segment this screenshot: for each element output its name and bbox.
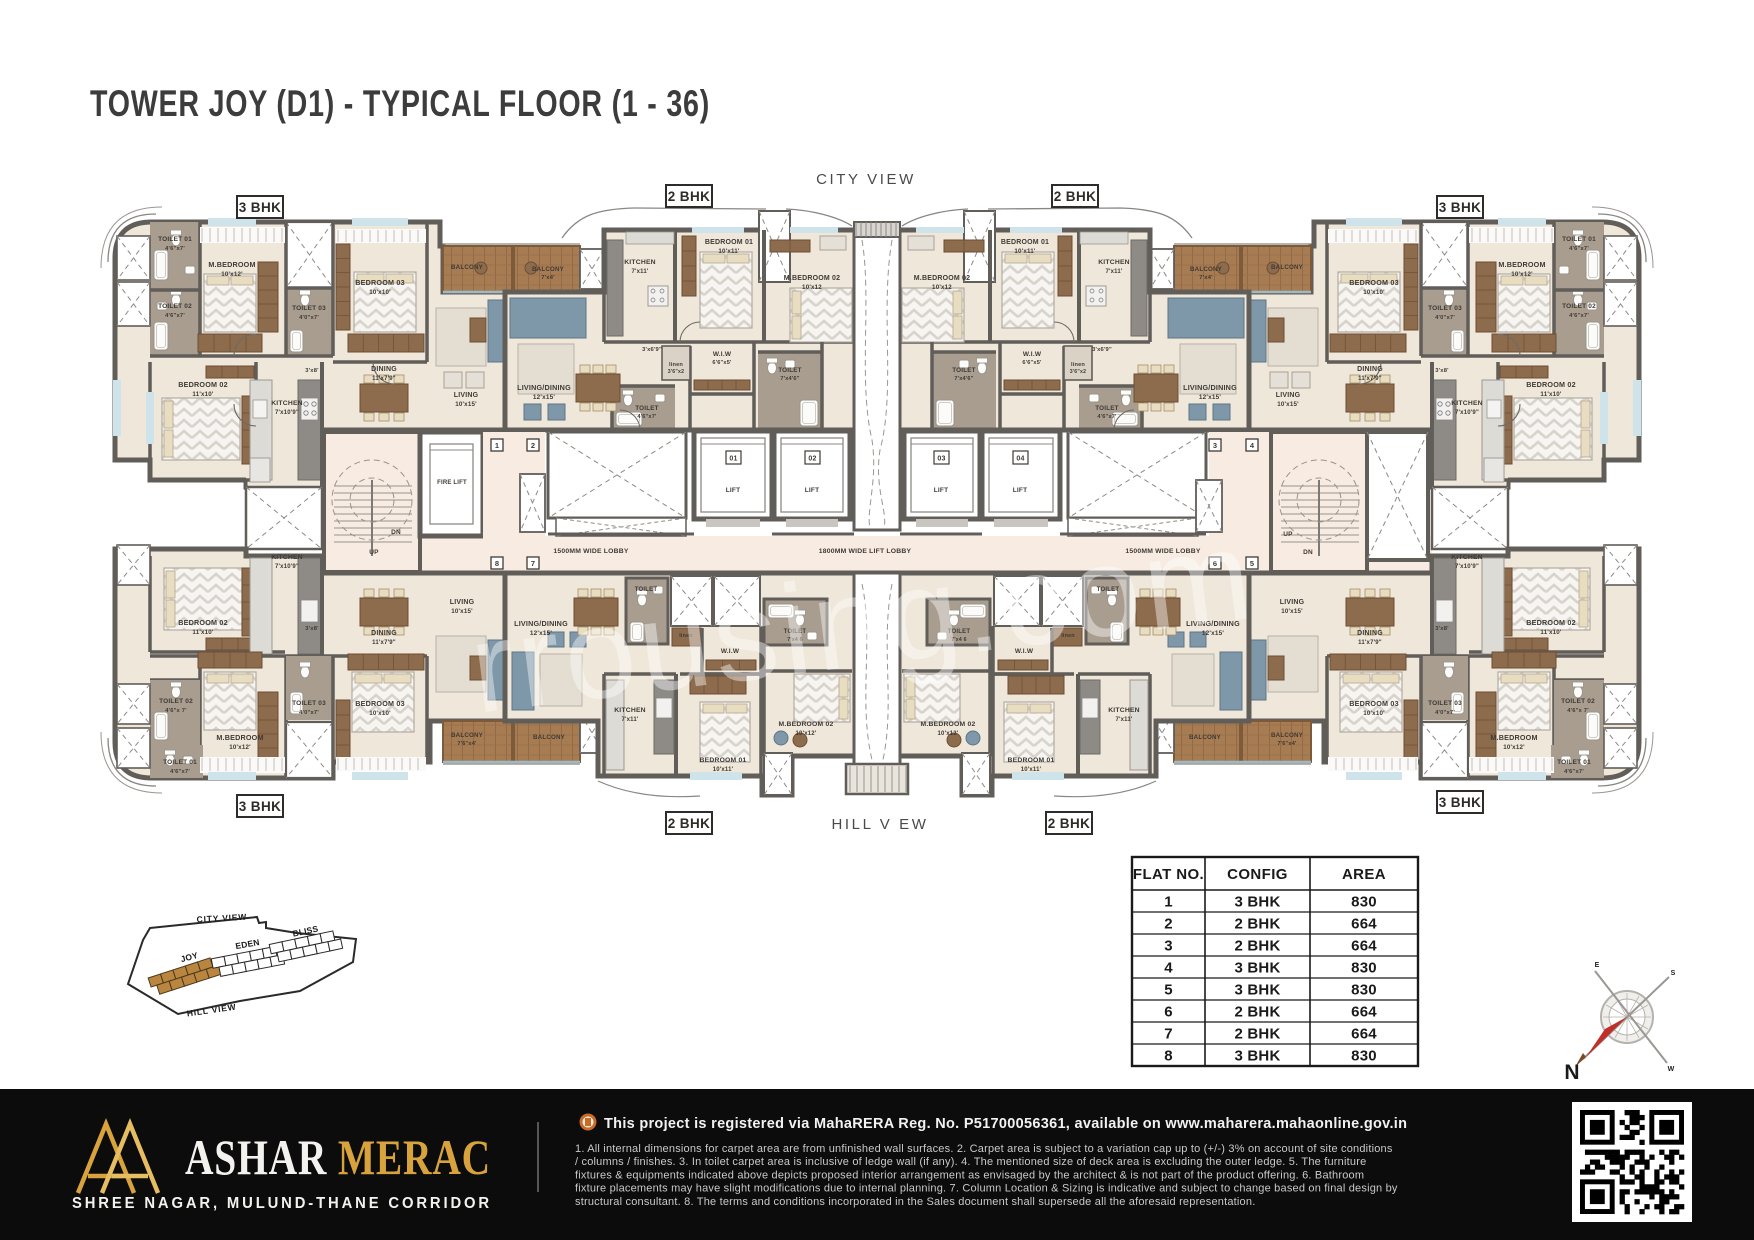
svg-text:03: 03 (937, 456, 945, 463)
svg-text:830: 830 (1351, 1048, 1377, 1065)
svg-text:UP: UP (1283, 531, 1293, 538)
svg-text:2 BHK: 2 BHK (668, 816, 711, 831)
svg-text:4: 4 (1250, 441, 1255, 450)
svg-text:TOILET: TOILET (635, 405, 658, 412)
svg-text:LIFT: LIFT (1013, 487, 1028, 494)
svg-text:linen: linen (669, 362, 683, 368)
svg-text:3 BHK: 3 BHK (1234, 894, 1280, 911)
svg-text:LIFT: LIFT (934, 487, 949, 494)
svg-text:830: 830 (1351, 894, 1377, 911)
svg-text:3'6"x2: 3'6"x2 (668, 369, 684, 375)
svg-text:8: 8 (1164, 1048, 1173, 1065)
svg-text:BALCONY: BALCONY (532, 266, 565, 273)
svg-text:10'x11': 10'x11' (1014, 248, 1036, 255)
svg-text:11'x7'9": 11'x7'9" (372, 376, 396, 382)
svg-text:11'x7'9": 11'x7'9" (1358, 376, 1382, 382)
svg-text:7'x10'9": 7'x10'9" (275, 564, 299, 570)
svg-text:7'x4'6": 7'x4'6" (954, 376, 973, 382)
svg-text:LIFT: LIFT (805, 487, 820, 494)
svg-text:7: 7 (531, 559, 535, 568)
svg-text:BALCONY: BALCONY (533, 734, 566, 741)
svg-text:830: 830 (1351, 960, 1377, 977)
svg-text:10'x12: 10'x12 (932, 284, 952, 291)
svg-text:7'x10'9": 7'x10'9" (275, 410, 299, 416)
svg-text:4'6"x 7': 4'6"x 7' (165, 708, 187, 714)
svg-text:2: 2 (531, 441, 535, 450)
svg-text:This project is registered via: This project is registered via MahaRERA … (604, 1116, 1407, 1132)
svg-text:10'x15': 10'x15' (1281, 608, 1303, 615)
svg-text:6'6"x5': 6'6"x5' (1022, 360, 1042, 366)
svg-text:TOILET 01: TOILET 01 (1557, 759, 1591, 766)
svg-text:4'6"x7': 4'6"x7' (165, 313, 185, 319)
svg-text:11'x10': 11'x10' (192, 391, 214, 398)
svg-text:7'6"x4': 7'6"x4' (1277, 741, 1297, 747)
svg-text:10'x12: 10'x12 (802, 284, 822, 291)
svg-text:3 BHK: 3 BHK (1234, 1048, 1280, 1065)
svg-text:4'0"x7': 4'0"x7' (299, 315, 319, 321)
svg-text:7'x10'9": 7'x10'9" (1455, 410, 1479, 416)
svg-text:2 BHK: 2 BHK (1054, 189, 1097, 204)
svg-text:BALCONY: BALCONY (1189, 734, 1222, 741)
svg-text:LIFT: LIFT (726, 487, 741, 494)
svg-text:10'x11': 10'x11' (713, 767, 734, 773)
svg-text:3 BHK: 3 BHK (1439, 795, 1482, 810)
svg-text:3'x6'9": 3'x6'9" (1092, 347, 1112, 353)
svg-text:10'x12': 10'x12' (938, 731, 959, 737)
svg-text:BEDROOM 02: BEDROOM 02 (1526, 618, 1576, 627)
svg-text:4: 4 (1164, 960, 1173, 977)
svg-text:4'6"x7': 4'6"x7' (637, 414, 657, 420)
svg-text:664: 664 (1351, 1026, 1377, 1043)
svg-text:1: 1 (1164, 894, 1173, 911)
svg-text:BEDROOM 01: BEDROOM 01 (1001, 239, 1049, 246)
svg-text:DINING: DINING (1357, 630, 1383, 637)
svg-text:LIVING/DINING: LIVING/DINING (1183, 383, 1237, 392)
svg-text:3'x8': 3'x8' (1435, 368, 1449, 374)
svg-text:10'x12': 10'x12' (221, 271, 243, 278)
svg-text:10'x11': 10'x11' (718, 248, 740, 255)
svg-text:4'0"x7': 4'0"x7' (1435, 710, 1455, 716)
svg-text:2 BHK: 2 BHK (1048, 816, 1091, 831)
svg-text:LIVING/DINING: LIVING/DINING (517, 383, 571, 392)
svg-text:TOILET 02: TOILET 02 (1562, 303, 1596, 310)
svg-text:TOILET 02: TOILET 02 (158, 303, 192, 310)
svg-text:3'6"x2: 3'6"x2 (1070, 369, 1086, 375)
svg-text:4'6"x7': 4'6"x7' (1569, 246, 1589, 252)
svg-text:BEDROOM 02: BEDROOM 02 (178, 618, 228, 627)
svg-text:8: 8 (495, 559, 499, 568)
svg-text:02: 02 (808, 456, 816, 463)
svg-text:KITCHEN: KITCHEN (1108, 707, 1140, 714)
svg-text:BEDROOM 03: BEDROOM 03 (355, 699, 405, 708)
svg-text:4'6"x7': 4'6"x7' (1564, 769, 1584, 775)
svg-text:10'x10': 10'x10' (369, 710, 391, 717)
svg-text:ASHAR MERAC: ASHAR MERAC (185, 1129, 491, 1185)
svg-text:KITCHEN: KITCHEN (1451, 554, 1483, 561)
svg-text:11'x7'9": 11'x7'9" (1358, 640, 1382, 646)
svg-text:TOILET: TOILET (1095, 405, 1118, 412)
svg-text:7'x11': 7'x11' (631, 269, 648, 275)
svg-text:4'0"x7': 4'0"x7' (1435, 315, 1455, 321)
svg-text:BEDROOM 03: BEDROOM 03 (355, 278, 405, 287)
svg-text:10'x11': 10'x11' (1021, 767, 1042, 773)
svg-text:BALCONY: BALCONY (451, 264, 484, 271)
svg-text:N: N (1564, 1061, 1579, 1084)
svg-text:2 BHK: 2 BHK (1234, 1026, 1280, 1043)
svg-text:7'x4': 7'x4' (1199, 275, 1213, 281)
svg-text:10'x10': 10'x10' (1363, 289, 1385, 296)
svg-text:3'x8': 3'x8' (1435, 626, 1449, 632)
svg-text:BALCONY: BALCONY (1271, 264, 1304, 271)
svg-text:TOILET 03: TOILET 03 (1428, 305, 1462, 312)
svg-text:FIRE LIFT: FIRE LIFT (437, 480, 467, 486)
svg-text:BEDROOM 03: BEDROOM 03 (1349, 699, 1399, 708)
svg-text:TOILET 01: TOILET 01 (1562, 236, 1596, 243)
svg-text:12'x15': 12'x15' (1199, 394, 1221, 401)
svg-text:10'x12': 10'x12' (1511, 271, 1533, 278)
svg-text:M.BEDROOM: M.BEDROOM (208, 260, 255, 269)
svg-text:linen: linen (1071, 362, 1085, 368)
svg-text:2: 2 (1164, 916, 1173, 933)
svg-text:TOILET 01: TOILET 01 (163, 759, 197, 766)
svg-text:BEDROOM 01: BEDROOM 01 (1008, 757, 1055, 764)
svg-text:KITCHEN: KITCHEN (271, 554, 303, 561)
svg-text:LIVING: LIVING (454, 392, 479, 399)
svg-text:4'6"x7': 4'6"x7' (1569, 313, 1589, 319)
svg-text:10'x15': 10'x15' (1277, 401, 1299, 408)
svg-text:TOILET 03: TOILET 03 (292, 700, 326, 707)
svg-text:6'6"x5': 6'6"x5' (712, 360, 732, 366)
svg-text:3 BHK: 3 BHK (239, 799, 282, 814)
svg-text:W: W (1668, 1066, 1675, 1073)
svg-text:3 BHK: 3 BHK (1234, 982, 1280, 999)
svg-text:4'6"x7': 4'6"x7' (1097, 414, 1117, 420)
svg-text:3: 3 (1164, 938, 1173, 955)
svg-text:10'x10': 10'x10' (1363, 710, 1385, 717)
svg-text:W.I.W: W.I.W (1023, 351, 1042, 358)
svg-text:2 BHK: 2 BHK (1234, 1004, 1280, 1021)
svg-text:TOILET 02: TOILET 02 (1561, 698, 1595, 705)
svg-text:KITCHEN: KITCHEN (1451, 400, 1483, 407)
svg-text:11'x10': 11'x10' (1540, 629, 1562, 636)
svg-text:SHREE NAGAR, MULUND-THANE CORR: SHREE NAGAR, MULUND-THANE CORRIDOR (72, 1195, 492, 1212)
svg-text:3 BHK: 3 BHK (1234, 960, 1280, 977)
svg-text:KITCHEN: KITCHEN (1098, 259, 1130, 266)
svg-text:KITCHEN: KITCHEN (271, 400, 303, 407)
svg-text:TOILET: TOILET (952, 367, 975, 374)
svg-text:M.BEDROOM 02: M.BEDROOM 02 (779, 721, 834, 728)
svg-text:2 BHK: 2 BHK (668, 189, 711, 204)
svg-text:DN: DN (391, 529, 401, 536)
svg-text:5: 5 (1164, 982, 1173, 999)
svg-text:M.BEDROOM 02: M.BEDROOM 02 (914, 275, 970, 282)
svg-text:3: 3 (1213, 441, 1217, 450)
svg-text:664: 664 (1351, 938, 1377, 955)
svg-text:TOILET 03: TOILET 03 (292, 305, 326, 312)
svg-text:10'x12': 10'x12' (1503, 744, 1525, 751)
svg-text:BEDROOM 01: BEDROOM 01 (705, 239, 753, 246)
svg-text:HILL V EW: HILL V EW (831, 816, 928, 833)
svg-text:7'x11': 7'x11' (1115, 717, 1132, 723)
svg-text:M.BEDROOM 02: M.BEDROOM 02 (921, 721, 976, 728)
svg-text:M.BEDROOM 02: M.BEDROOM 02 (784, 275, 840, 282)
svg-text:4'0"x7': 4'0"x7' (299, 710, 319, 716)
svg-text:10'x12': 10'x12' (796, 731, 817, 737)
svg-text:2 BHK: 2 BHK (1234, 938, 1280, 955)
svg-text:04: 04 (1016, 456, 1024, 463)
svg-text:3 BHK: 3 BHK (1439, 200, 1482, 215)
svg-text:E: E (1595, 962, 1600, 969)
svg-text:3'x8': 3'x8' (305, 368, 319, 374)
svg-text:01: 01 (729, 456, 737, 463)
svg-text:LIVING: LIVING (1276, 392, 1301, 399)
svg-text:M.BEDROOM: M.BEDROOM (216, 733, 263, 742)
svg-text:664: 664 (1351, 916, 1377, 933)
svg-text:TOILET 03: TOILET 03 (1428, 700, 1462, 707)
svg-text:W.I.W: W.I.W (713, 351, 732, 358)
svg-text:11'x7'9": 11'x7'9" (372, 640, 396, 646)
svg-text:10'x12': 10'x12' (229, 744, 251, 751)
svg-text:11'x10': 11'x10' (192, 629, 214, 636)
svg-text:4'6"x 7': 4'6"x 7' (1567, 708, 1589, 714)
svg-text:4'6"x7': 4'6"x7' (170, 769, 190, 775)
svg-text:7'6"x4': 7'6"x4' (457, 741, 477, 747)
svg-text:CITY VIEW: CITY VIEW (816, 171, 916, 188)
svg-text:10'x10': 10'x10' (369, 289, 391, 296)
svg-text:10'x15': 10'x15' (455, 401, 477, 408)
svg-text:CONFIG: CONFIG (1227, 866, 1288, 883)
svg-text:6: 6 (1164, 1004, 1173, 1021)
svg-text:BEDROOM 02: BEDROOM 02 (1526, 380, 1576, 389)
svg-text:3'x6'9": 3'x6'9" (642, 347, 662, 353)
svg-text:DINING: DINING (371, 630, 397, 637)
svg-text:TOWER JOY (D1) - TYPICAL FLOOR: TOWER JOY (D1) - TYPICAL FLOOR (1 - 36) (90, 83, 710, 124)
svg-text:3'x8': 3'x8' (305, 626, 319, 632)
svg-text:BEDROOM 02: BEDROOM 02 (178, 380, 228, 389)
svg-text:7'x10'9": 7'x10'9" (1455, 564, 1479, 570)
svg-text:DINING: DINING (371, 366, 397, 373)
svg-text:BEDROOM 03: BEDROOM 03 (1349, 278, 1399, 287)
svg-text:TOILET 01: TOILET 01 (158, 236, 192, 243)
svg-text:3 BHK: 3 BHK (239, 200, 282, 215)
svg-text:7: 7 (1164, 1026, 1173, 1043)
svg-text:7'x4'6": 7'x4'6" (780, 376, 799, 382)
svg-text:7'x11': 7'x11' (1105, 269, 1122, 275)
svg-text:LIVING: LIVING (1280, 599, 1305, 606)
svg-text:FLAT NO.: FLAT NO. (1133, 866, 1204, 883)
svg-text:12'x15': 12'x15' (533, 394, 555, 401)
svg-text:BALCONY: BALCONY (1190, 266, 1223, 273)
svg-text:M.BEDROOM: M.BEDROOM (1490, 733, 1537, 742)
svg-text:BEDROOM 01: BEDROOM 01 (700, 757, 747, 764)
svg-text:TOILET 02: TOILET 02 (159, 698, 193, 705)
svg-text:7'x4': 7'x4' (541, 275, 555, 281)
svg-text:AREA: AREA (1342, 866, 1386, 883)
svg-text:1: 1 (495, 441, 499, 450)
svg-text:S: S (1671, 970, 1676, 977)
svg-text:TOILET: TOILET (778, 367, 801, 374)
svg-text:664: 664 (1351, 1004, 1377, 1021)
svg-text:UP: UP (369, 549, 379, 556)
svg-text:830: 830 (1351, 982, 1377, 999)
svg-text:4'6"x7': 4'6"x7' (165, 246, 185, 252)
svg-text:DN: DN (1303, 549, 1313, 556)
svg-text:2 BHK: 2 BHK (1234, 916, 1280, 933)
svg-text:KITCHEN: KITCHEN (624, 259, 656, 266)
svg-text:BALCONY: BALCONY (1271, 732, 1304, 739)
svg-text:11'x10': 11'x10' (1540, 391, 1562, 398)
svg-text:1500MM WIDE LOBBY: 1500MM WIDE LOBBY (553, 548, 628, 555)
svg-text:M.BEDROOM: M.BEDROOM (1498, 260, 1545, 269)
svg-text:DINING: DINING (1357, 366, 1383, 373)
